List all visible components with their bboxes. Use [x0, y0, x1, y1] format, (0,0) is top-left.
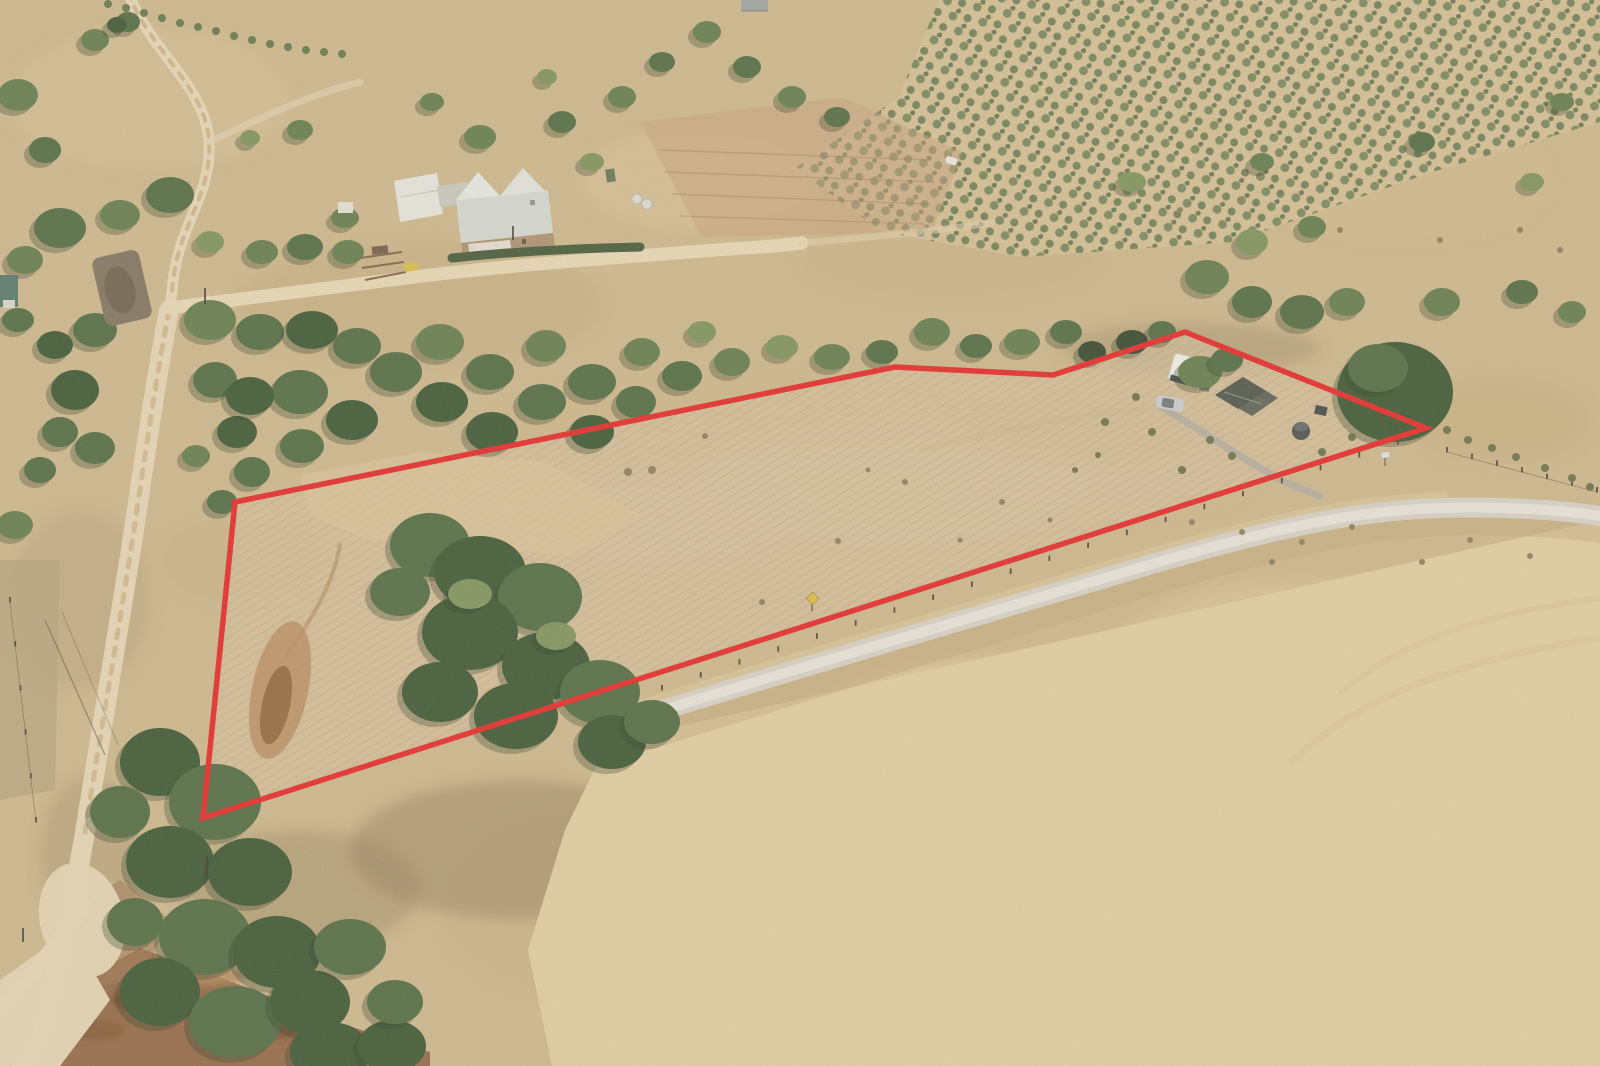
- aerial-photo: [0, 0, 1600, 1066]
- photo-grain-light: [0, 0, 1600, 1066]
- aerial-photo-stage: [0, 0, 1600, 1066]
